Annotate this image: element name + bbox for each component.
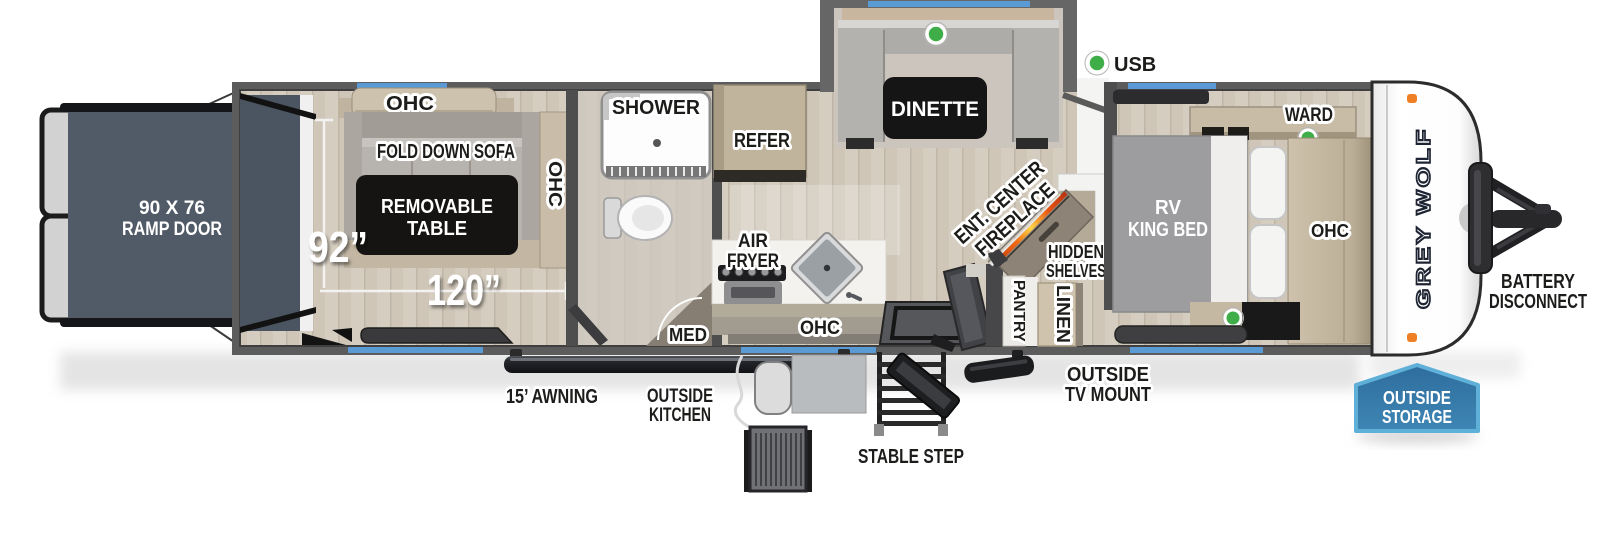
svg-text:AIR: AIR: [738, 231, 768, 252]
svg-text:OUTSIDE: OUTSIDE: [1383, 388, 1451, 408]
svg-text:USB: USB: [1114, 54, 1156, 76]
svg-text:REMOVABLE: REMOVABLE: [381, 196, 493, 218]
svg-text:SHELVES: SHELVES: [1046, 261, 1106, 281]
svg-text:LINEN: LINEN: [1053, 285, 1073, 343]
svg-text:HIDDEN: HIDDEN: [1048, 242, 1104, 262]
svg-text:FRYER: FRYER: [727, 251, 779, 272]
svg-text:FOLD DOWN SOFA: FOLD DOWN SOFA: [377, 141, 515, 163]
svg-text:90 X 76: 90 X 76: [139, 198, 205, 219]
svg-text:92”: 92”: [308, 223, 368, 272]
svg-text:TV MOUNT: TV MOUNT: [1065, 384, 1151, 406]
svg-text:RAMP DOOR: RAMP DOOR: [122, 219, 222, 240]
svg-text:OUTSIDE: OUTSIDE: [1067, 364, 1149, 386]
svg-text:OHC: OHC: [1311, 221, 1349, 241]
svg-text:STABLE STEP: STABLE STEP: [858, 446, 964, 468]
svg-text:OHC: OHC: [800, 318, 840, 339]
svg-text:120”: 120”: [427, 266, 501, 315]
svg-text:15’ AWNING: 15’ AWNING: [506, 386, 598, 408]
svg-text:OUTSIDE: OUTSIDE: [647, 386, 713, 407]
svg-text:KITCHEN: KITCHEN: [649, 405, 711, 426]
svg-text:STORAGE: STORAGE: [1382, 407, 1452, 427]
svg-text:WARD: WARD: [1285, 105, 1333, 126]
svg-text:KING BED: KING BED: [1128, 219, 1208, 241]
svg-text:TABLE: TABLE: [407, 218, 467, 240]
svg-text:RV: RV: [1155, 197, 1182, 219]
svg-text:BATTERY: BATTERY: [1501, 271, 1576, 293]
svg-text:GREY WOLF: GREY WOLF: [1414, 127, 1435, 309]
svg-text:SHOWER: SHOWER: [612, 97, 701, 119]
svg-text:REFER: REFER: [734, 130, 790, 152]
svg-text:OHC: OHC: [386, 93, 434, 115]
svg-text:OHC: OHC: [545, 161, 565, 207]
svg-text:DINETTE: DINETTE: [891, 98, 979, 121]
svg-text:MED: MED: [669, 325, 707, 345]
svg-text:DISCONNECT: DISCONNECT: [1489, 291, 1587, 313]
